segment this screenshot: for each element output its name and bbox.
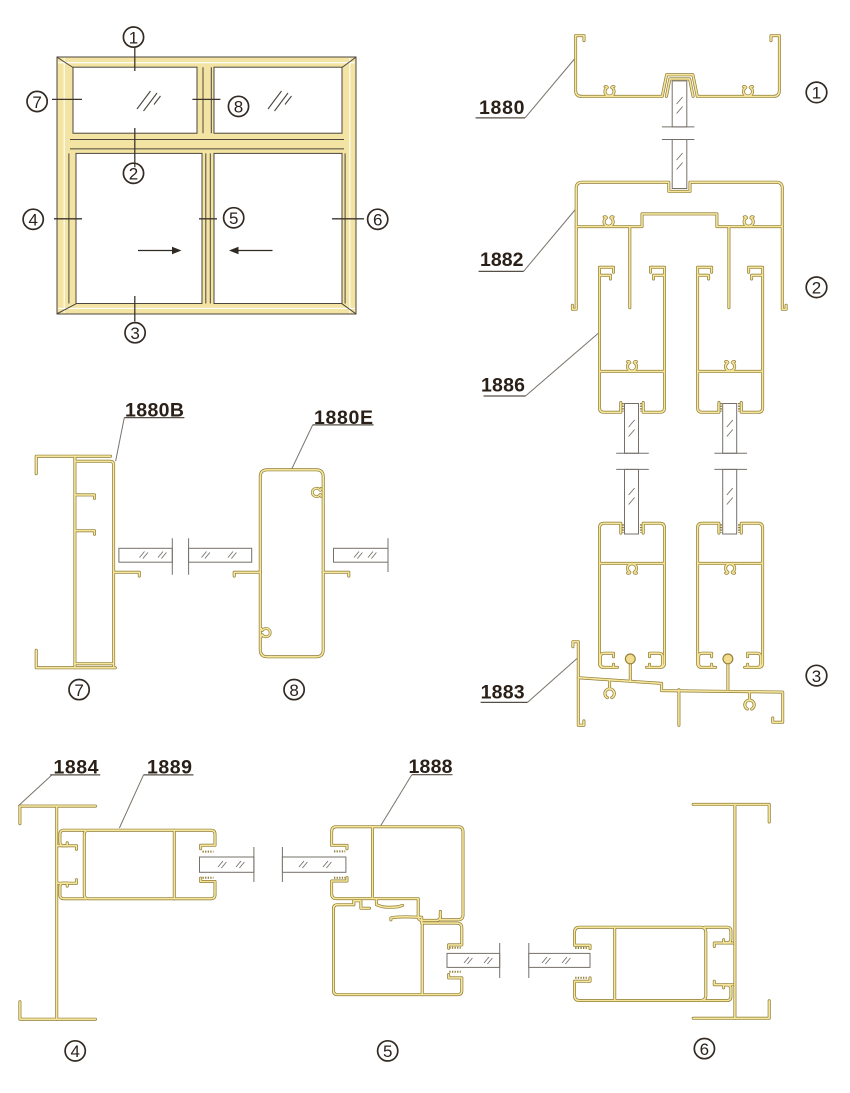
svg-text:3: 3 xyxy=(812,667,821,686)
svg-text:1883: 1883 xyxy=(481,682,525,704)
svg-text:4: 4 xyxy=(70,1042,79,1061)
svg-text:3: 3 xyxy=(130,324,139,343)
svg-text:1880E: 1880E xyxy=(314,407,373,429)
svg-text:1884: 1884 xyxy=(54,757,99,779)
svg-text:2: 2 xyxy=(812,279,821,298)
svg-text:1: 1 xyxy=(129,28,138,47)
svg-text:7: 7 xyxy=(74,681,83,700)
svg-text:1889: 1889 xyxy=(147,757,192,779)
svg-text:1882: 1882 xyxy=(480,249,524,271)
svg-text:1880B: 1880B xyxy=(125,400,184,422)
svg-text:8: 8 xyxy=(289,681,298,700)
svg-text:4: 4 xyxy=(28,211,37,230)
svg-text:1880: 1880 xyxy=(479,97,525,119)
svg-text:1888: 1888 xyxy=(409,756,453,778)
svg-text:1886: 1886 xyxy=(481,375,525,397)
svg-text:7: 7 xyxy=(32,93,41,112)
svg-text:5: 5 xyxy=(229,209,238,228)
svg-text:6: 6 xyxy=(700,1040,709,1059)
svg-text:1: 1 xyxy=(812,84,821,103)
svg-text:2: 2 xyxy=(129,165,138,184)
svg-text:8: 8 xyxy=(234,98,243,117)
svg-text:6: 6 xyxy=(373,211,382,230)
svg-text:5: 5 xyxy=(383,1042,392,1061)
